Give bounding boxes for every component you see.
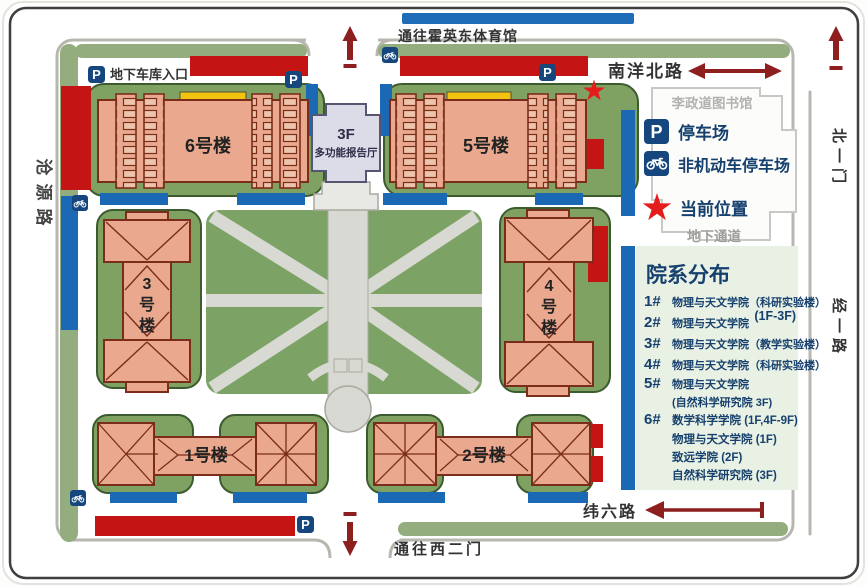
hall-name-label: 多功能报告厅: [315, 146, 378, 159]
parking-icon: P: [88, 66, 105, 83]
verge-top-left: [75, 44, 307, 58]
parking-strip-west: [61, 86, 91, 190]
verge-bottom: [398, 522, 788, 536]
department-panel: 院系分布 1# 物理与天文学院（科研实验楼） (1F-3F) 2# 物理与天文学…: [621, 246, 826, 490]
building-5: 5号楼: [390, 94, 586, 188]
panel-row-text: 物理与天文学院: [672, 316, 749, 330]
bicycle-icon: [72, 195, 88, 211]
arrow-tick: [344, 512, 357, 516]
plaza-path-vertical: [328, 206, 368, 402]
panel-row-text: (自然科学研究院 3F): [672, 395, 773, 409]
bicycle-icon: [644, 151, 669, 176]
parking-strip-b5-east: [587, 139, 604, 169]
bicycle-icon: [70, 490, 86, 506]
north-gate-label: 北一门: [830, 128, 848, 188]
bike-strip-legend-top: [621, 110, 635, 216]
panel-row-text: 数学科学学院 (1F,4F-9F): [672, 413, 798, 427]
panel-row-text: 物理与天文学院（科研实验楼）: [672, 295, 826, 309]
nanyang-north-road-label: 南洋北路: [608, 61, 684, 81]
building-6: 6号楼: [98, 94, 308, 188]
parking-strip-top-right: [400, 56, 588, 76]
panel-row-num: 6#: [644, 411, 661, 428]
jingyi-road-label: 经一路: [830, 298, 848, 358]
building-3-label-char: 3: [143, 276, 152, 293]
parking-icon: P: [297, 516, 314, 533]
panel-row-text: 物理与天文学院 (1F): [672, 432, 777, 446]
panel-row-text: 致远学院 (2F): [672, 450, 742, 464]
campus-map: 6号楼 5号楼 3F 多功能报告厅: [0, 0, 867, 586]
to-west-gate-label: 通往西二门: [394, 540, 484, 558]
arrow-tick: [344, 64, 357, 68]
building-4-label-char: 号: [541, 298, 557, 316]
parking-icon: P: [285, 71, 302, 88]
underpass-label: 地下通道: [687, 228, 741, 244]
building-6-label: 6号楼: [185, 135, 231, 156]
building-3-label-char: 楼: [139, 316, 155, 335]
hall-floor-label: 3F: [337, 126, 355, 143]
parking-strip-bottom: [95, 516, 295, 536]
legend-parking-label: 停车场: [678, 123, 729, 143]
svg-text:P: P: [92, 67, 101, 82]
panel-row-text: 自然科学研究院 (3F): [672, 468, 777, 482]
library-label: 李政道图书馆: [671, 95, 753, 111]
weiliu-road-label: 纬六路: [583, 502, 637, 521]
building-4-label-char: 楼: [541, 318, 557, 337]
panel-title: 院系分布: [646, 263, 730, 287]
parking-icon: P: [539, 64, 556, 81]
svg-text:P: P: [650, 122, 662, 142]
panel-row-num: 5#: [644, 375, 661, 392]
bicycle-icon: [382, 47, 398, 63]
legend-current-location-label: 当前位置: [680, 199, 748, 219]
panel-row-text: 物理与天文学院（科研实验楼）: [672, 358, 826, 372]
building-4-label-char: 4: [545, 278, 554, 295]
gym-road-strip: [402, 13, 634, 24]
arrow-tick: [830, 66, 843, 70]
legend-bike-parking-label: 非机动车停车场: [678, 156, 790, 175]
svg-text:P: P: [301, 517, 310, 532]
svg-text:P: P: [289, 72, 298, 87]
panel-row-num: 4#: [644, 356, 661, 373]
fountain: [325, 386, 371, 432]
verge-top-right: [378, 44, 790, 58]
panel-blue-bar: [621, 246, 635, 490]
panel-row-num: 3#: [644, 335, 661, 352]
panel-row-num: 2#: [644, 314, 661, 331]
panel-row-text: (1F-3F): [754, 309, 796, 323]
building-3-label-char: 号: [139, 296, 155, 314]
garage-entrance-label: 地下车库入口: [110, 67, 188, 82]
svg-text:P: P: [543, 65, 552, 80]
to-gym-label: 通往霍英东体育馆: [398, 28, 518, 44]
multifunction-hall: 3F 多功能报告厅: [312, 104, 380, 210]
building-5-label: 5号楼: [463, 135, 509, 156]
panel-row-text: 物理与天文学院（教学实验楼）: [672, 337, 826, 351]
building-2-label: 2号楼: [462, 445, 505, 465]
building-1-label: 1号楼: [184, 445, 227, 465]
panel-row-num: 1#: [644, 293, 661, 310]
panel-row-text: 物理与天文学院: [672, 377, 749, 391]
cangyuan-road-label: 沧源路: [34, 159, 54, 234]
parking-icon: P: [644, 119, 669, 144]
